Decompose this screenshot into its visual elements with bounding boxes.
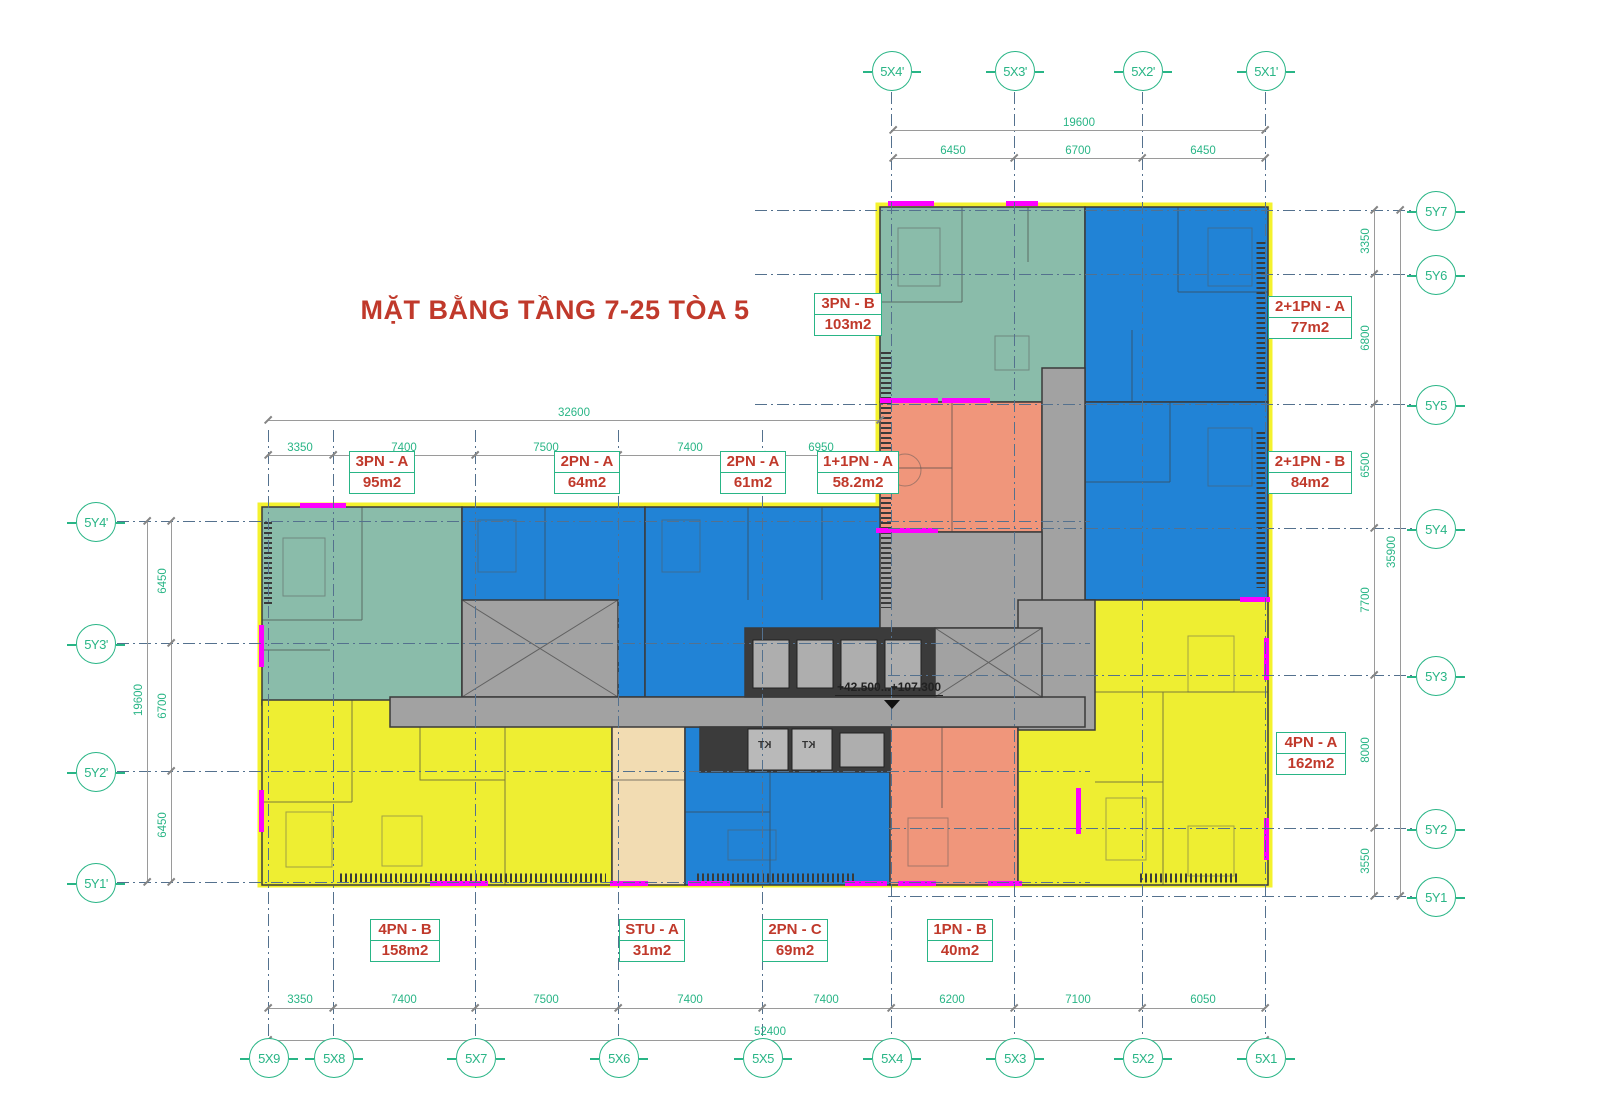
apartment-area: 40m2 (927, 940, 993, 962)
grid-line (888, 828, 1414, 829)
apartment-type: 2+1PN - B (1268, 451, 1352, 473)
apartment-area: 58.2m2 (817, 472, 899, 494)
grid-line (755, 210, 1414, 211)
axis-circle-5y6: 5Y6 (1416, 255, 1456, 295)
apartment-1pn-b-region (890, 727, 1018, 885)
grid-line (117, 521, 1090, 522)
grid-line (888, 675, 1414, 676)
axis-circle-5y5: 5Y5 (1416, 385, 1456, 425)
axis-circle-5y3: 5Y3 (1416, 656, 1456, 696)
dimension-line (893, 158, 1265, 159)
apartment-type: 2+1PN - A (1268, 296, 1352, 318)
apartment-2plus1pn-a-region (1085, 207, 1268, 402)
apartment-type: 2PN - C (762, 919, 828, 941)
level-marker-icon (884, 700, 900, 709)
dimension-value: 6450 (157, 795, 169, 855)
apartment-type: 1PN - B (927, 919, 993, 941)
apartment-label: 1+1PN - A58.2m2 (817, 451, 899, 494)
apartment-label: 2PN - A64m2 (554, 451, 620, 494)
apartment-2plus1pn-b-region (1085, 402, 1268, 600)
dimension-value: 3550 (1360, 831, 1372, 891)
dimension-value: 7400 (660, 994, 720, 1006)
apartment-type: 3PN - B (814, 293, 882, 315)
axis-circle-5x3p: 5X3' (995, 51, 1035, 91)
dimension-value: 6200 (922, 994, 982, 1006)
grid-line (755, 404, 1414, 405)
dimension-value: 6450 (157, 551, 169, 611)
dimension-value: 32600 (544, 407, 604, 419)
dimension-line (893, 130, 1265, 131)
dimension-line (268, 1008, 1265, 1009)
dimension-value: 8000 (1360, 720, 1372, 780)
grid-line (1014, 92, 1015, 1036)
dimension-value: 35900 (1386, 522, 1398, 582)
dimension-value: 7100 (1048, 994, 1108, 1006)
dimension-value: 6800 (1360, 308, 1372, 368)
dimension-value: 3350 (270, 442, 330, 454)
apartment-type: 4PN - B (370, 919, 440, 941)
grid-line (755, 274, 1414, 275)
axis-circle-5x7: 5X7 (456, 1038, 496, 1078)
level-note: +42.500...+107.300 (835, 680, 943, 696)
apartment-area: 103m2 (814, 314, 882, 336)
apartment-label: STU - A31m2 (619, 919, 685, 962)
floor-plan-sheet: MẶT BẰNG TẦNG 7-25 TÒA 5 +42.500...+107.… (0, 0, 1600, 1104)
page-title: MẶT BẰNG TẦNG 7-25 TÒA 5 (355, 295, 755, 326)
apartment-area: 77m2 (1268, 317, 1352, 339)
axis-circle-5x1p: 5X1' (1246, 51, 1286, 91)
dimension-value: 7400 (796, 994, 856, 1006)
dimension-value: 6050 (1173, 994, 1233, 1006)
axis-circle-5y7: 5Y7 (1416, 191, 1456, 231)
grid-line (888, 528, 1414, 529)
grid-line (117, 882, 1090, 883)
dimension-line (268, 420, 880, 421)
grid-line (1265, 92, 1266, 1036)
apartment-label: 4PN - B158m2 (370, 919, 440, 962)
axis-circle-5x4p: 5X4' (872, 51, 912, 91)
axis-circle-5y2: 5Y2 (1416, 809, 1456, 849)
apartment-type: 4PN - A (1276, 732, 1346, 754)
axis-circle-5x3: 5X3 (995, 1038, 1035, 1078)
axis-circle-5y2p: 5Y2' (76, 752, 116, 792)
apartment-type: 3PN - A (349, 451, 415, 473)
axis-circle-5y1p: 5Y1' (76, 863, 116, 903)
dimension-line (147, 521, 148, 882)
axis-circle-5x2p: 5X2' (1123, 51, 1163, 91)
apartment-label: 3PN - A95m2 (349, 451, 415, 494)
apartment-type: 1+1PN - A (817, 451, 899, 473)
apartment-area: 84m2 (1268, 472, 1352, 494)
dimension-value: 6450 (1173, 145, 1233, 157)
dimension-value: 7700 (1360, 570, 1372, 630)
grid-line (117, 771, 1090, 772)
apartment-area: 31m2 (619, 940, 685, 962)
apartment-label: 2PN - A61m2 (720, 451, 786, 494)
axis-circle-5x1: 5X1 (1246, 1038, 1286, 1078)
dimension-line (171, 521, 172, 882)
apartment-label: 1PN - B40m2 (927, 919, 993, 962)
dimension-value: 7500 (516, 994, 576, 1006)
apartment-area: 61m2 (720, 472, 786, 494)
apartment-area: 162m2 (1276, 753, 1346, 775)
dimension-value: 6450 (923, 145, 983, 157)
dimension-value: 3350 (270, 994, 330, 1006)
dimension-value: 6700 (157, 676, 169, 736)
apartment-area: 69m2 (762, 940, 828, 962)
axis-circle-5y1: 5Y1 (1416, 877, 1456, 917)
apartment-label: 3PN - B103m2 (814, 293, 882, 336)
dimension-line (1400, 210, 1401, 896)
axis-circle-5y3p: 5Y3' (76, 624, 116, 664)
apartment-type: 2PN - A (554, 451, 620, 473)
axis-circle-5x8: 5X8 (314, 1038, 354, 1078)
axis-circle-5y4: 5Y4 (1416, 509, 1456, 549)
axis-circle-5x5: 5X5 (743, 1038, 783, 1078)
apartment-area: 95m2 (349, 472, 415, 494)
axis-circle-5x2: 5X2 (1123, 1038, 1163, 1078)
apartment-label: 4PN - A162m2 (1276, 732, 1346, 775)
dimension-value: 6500 (1360, 435, 1372, 495)
shaft-label: KT (802, 740, 815, 751)
dimension-value: 19600 (1049, 117, 1109, 129)
shaft-label: KT (758, 740, 771, 751)
grid-line (888, 896, 1414, 897)
apartment-label: 2PN - C69m2 (762, 919, 828, 962)
axis-circle-5x6: 5X6 (599, 1038, 639, 1078)
apartment-label: 2+1PN - B84m2 (1268, 451, 1352, 494)
apartment-stu-a-region (612, 720, 685, 885)
grid-line (1142, 92, 1143, 1036)
dimension-value: 52400 (740, 1026, 800, 1038)
dimension-value: 7400 (660, 442, 720, 454)
apartment-1plus1pn-a-region (880, 402, 1042, 532)
dimension-value: 3350 (1360, 211, 1372, 271)
dimension-line (1374, 210, 1375, 896)
axis-circle-5x9: 5X9 (249, 1038, 289, 1078)
dimension-value: 7400 (374, 994, 434, 1006)
grid-line (891, 92, 892, 1036)
axis-circle-5y4p: 5Y4' (76, 502, 116, 542)
apartment-type: STU - A (619, 919, 685, 941)
apartment-area: 64m2 (554, 472, 620, 494)
apartment-area: 158m2 (370, 940, 440, 962)
corridor-horizontal (390, 697, 1085, 727)
grid-line (117, 643, 1090, 644)
apartment-label: 2+1PN - A77m2 (1268, 296, 1352, 339)
apartment-type: 2PN - A (720, 451, 786, 473)
dimension-value: 19600 (133, 670, 145, 730)
dimension-value: 6700 (1048, 145, 1108, 157)
axis-circle-5x4: 5X4 (872, 1038, 912, 1078)
